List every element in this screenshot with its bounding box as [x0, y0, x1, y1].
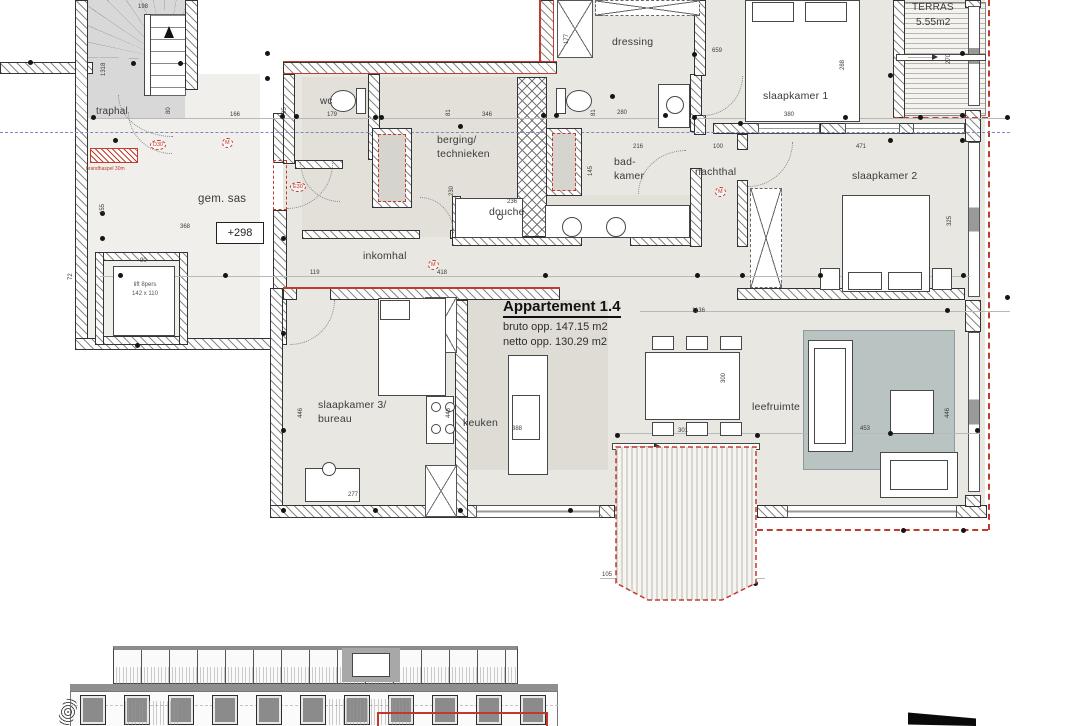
apartment-title: Appartement 1.4 [503, 298, 621, 318]
dimension-label: 179 [327, 112, 337, 118]
roof-slab [70, 684, 558, 691]
toilet-icon-bowl [566, 90, 592, 112]
survey-dot [281, 508, 286, 513]
survey-dot [373, 508, 378, 513]
survey-dot [615, 433, 620, 438]
room-label: wc [320, 96, 333, 107]
room-label: kamer [614, 170, 644, 182]
survey-dot [281, 428, 286, 433]
dimension-label: 659 [712, 48, 722, 54]
terrace-lower-deck [610, 441, 762, 609]
wall-segment [737, 134, 748, 150]
survey-dot [113, 138, 118, 143]
wardrobe [425, 465, 457, 517]
dining-table [645, 352, 740, 420]
plan-graphics-layer: traphalgem. saswcberging/techniekendouch… [0, 0, 1077, 726]
terrace-label: 5.55m2 [916, 17, 951, 28]
survey-dot [131, 61, 136, 66]
fire-rating-symbol: M [715, 187, 726, 197]
survey-dot [178, 61, 183, 66]
dimension-label: 270 [946, 54, 952, 64]
stair-rail [144, 14, 151, 96]
fire-rating-symbol: D30 [150, 140, 166, 150]
survey-dot [458, 124, 463, 129]
insulation-line [553, 0, 555, 62]
desk-chair [322, 462, 336, 476]
survey-dot [118, 273, 123, 278]
survey-dot [379, 115, 384, 120]
survey-dot [692, 52, 697, 57]
survey-dot [918, 115, 923, 120]
dimension-label: 446 [945, 408, 951, 418]
sink-icon [606, 217, 626, 237]
survey-dot [568, 508, 573, 513]
wall-segment [965, 110, 981, 142]
room-label: slaapkamer 2 [852, 170, 917, 182]
wall-segment [965, 300, 981, 332]
fire-hose-reel [90, 148, 138, 163]
room-label: gem. sas [198, 193, 246, 205]
dishwasher [512, 395, 540, 440]
room-label: inkomhal [363, 250, 407, 262]
survey-dot [554, 113, 559, 118]
fire-rating-symbol: M [428, 260, 439, 270]
sofa-cushion [814, 348, 846, 444]
burner-icon [431, 424, 441, 434]
survey-dot [901, 528, 906, 533]
room-label: slaapkamer 1 [763, 90, 828, 102]
penthouse-window [352, 653, 390, 677]
dimension-label: 280 [617, 110, 627, 116]
fire-rating-symbol: E30 [290, 182, 306, 192]
window [787, 505, 957, 518]
dimension-label: 216 [633, 144, 643, 150]
penthouse-railing [113, 667, 518, 684]
survey-dot [294, 114, 299, 119]
room-label: bureau [318, 413, 352, 425]
wall-segment [452, 237, 582, 246]
survey-dot [543, 273, 548, 278]
nightstand [932, 268, 952, 290]
coffee-table [890, 390, 934, 434]
level-marker: +298 [216, 222, 264, 244]
survey-dot [818, 273, 823, 278]
plot-boundary-line [988, 0, 990, 530]
dimension-label: 145 [588, 166, 594, 176]
toilet-icon-tank [356, 88, 366, 114]
wall-segment [185, 0, 198, 90]
balcony-railing [122, 701, 178, 725]
stair-direction-arrow [164, 26, 174, 38]
survey-dot [281, 236, 286, 241]
survey-dot [738, 121, 743, 126]
dimension-label: 277 [348, 492, 358, 498]
wall-segment [283, 288, 297, 300]
toilet-icon-tank [556, 88, 566, 114]
room-label: dressing [612, 36, 653, 48]
wall-segment [95, 336, 188, 345]
nightstand [820, 268, 840, 290]
survey-dot [1005, 115, 1010, 120]
slide-arrow-head [932, 54, 938, 60]
survey-dot [28, 60, 33, 65]
dimension-label: 236 [507, 199, 517, 205]
survey-dot [960, 51, 965, 56]
survey-dot [100, 236, 105, 241]
lift-label-line2: 142 x 110 [116, 291, 174, 297]
lift-label-line1: lift 8pers [116, 282, 174, 288]
dimension-label: 1136 [692, 308, 705, 314]
dimension-label: 119 [310, 270, 320, 276]
facade-window [212, 695, 238, 725]
dining-chair [652, 422, 674, 436]
dimension-label: 388 [512, 426, 522, 432]
dimension-label: 446 [446, 408, 452, 418]
survey-dot [945, 308, 950, 313]
wardrobe [595, 0, 700, 16]
burner-icon [431, 402, 441, 412]
dimension-label: 90 [140, 258, 147, 264]
survey-dot [223, 273, 228, 278]
survey-dot [373, 115, 378, 120]
survey-dot [888, 138, 893, 143]
dining-chair [686, 336, 708, 350]
dimension-label: 446 [298, 408, 304, 418]
toilet-icon-bowl [330, 90, 356, 112]
survey-dot [265, 51, 270, 56]
survey-dot [740, 273, 745, 278]
survey-dot [843, 115, 848, 120]
dimension-label: 418 [437, 270, 447, 276]
technical-unit [552, 133, 576, 191]
wall-segment [179, 252, 188, 345]
pillow [805, 2, 847, 22]
wall-segment [302, 230, 420, 239]
facade-window [80, 695, 106, 725]
pillow [380, 300, 410, 320]
title-block: Appartement 1.4 bruto opp. 147.15 m2 net… [503, 298, 621, 348]
dimension-label: 95 [282, 107, 288, 114]
dining-chair [652, 336, 674, 350]
dimension-label: 100 [713, 144, 723, 150]
dimension-label: 166 [230, 112, 240, 118]
survey-dot [541, 113, 546, 118]
dining-chair [720, 422, 742, 436]
facade-window [256, 695, 282, 725]
dining-chair [720, 336, 742, 350]
technical-unit [378, 134, 406, 202]
dimension-label: 300 [721, 373, 727, 383]
dimension-line [90, 118, 1010, 119]
survey-dot [692, 115, 697, 120]
window [476, 505, 600, 518]
dimension-label: 198 [138, 4, 148, 10]
burner-icon [445, 424, 455, 434]
dimension-label: 301 [678, 428, 688, 434]
wall-segment [965, 495, 981, 507]
room-label: berging/ [437, 134, 477, 146]
insulation-line [283, 73, 557, 75]
dimension-label: 1318 [101, 63, 107, 76]
facade-window [300, 695, 326, 725]
survey-dot [135, 343, 140, 348]
building-elevation [70, 643, 562, 726]
window [968, 142, 980, 297]
dimension-label: 80 [166, 107, 172, 114]
entry-door-marker [273, 160, 287, 210]
room-label: douche [489, 206, 525, 218]
slide-arrow-line [908, 57, 932, 58]
insulation-line [283, 287, 560, 289]
survey-dot [888, 73, 893, 78]
dimension-label: 346 [482, 112, 492, 118]
apartment-highlight-box [377, 712, 548, 726]
wall-segment [95, 252, 104, 345]
room-label: slaapkamer 3/ [318, 399, 387, 411]
window [968, 332, 980, 492]
dimension-label: 325 [947, 216, 953, 226]
dining-chair [686, 422, 708, 436]
wardrobe [557, 0, 593, 58]
insulation-line [283, 61, 557, 63]
fire-hose-label: brandhaspel 30m [86, 166, 125, 172]
survey-dot [961, 528, 966, 533]
insulation-line [539, 0, 541, 62]
wardrobe [750, 188, 782, 288]
room-label: technieken [437, 148, 490, 160]
survey-dot [663, 113, 668, 118]
net-area-label: netto opp. 130.29 m2 [503, 336, 621, 348]
room-label: keuken [463, 417, 498, 429]
pillow [888, 272, 922, 290]
armchair-cushion [890, 460, 948, 490]
survey-dot [975, 428, 980, 433]
floor-plan-canvas: traphalgem. saswcberging/techniekendouch… [0, 0, 1077, 726]
survey-dot [961, 273, 966, 278]
dimension-label: 288 [840, 60, 846, 70]
survey-dot [458, 508, 463, 513]
room-label: traphal [96, 106, 128, 117]
wall-segment [270, 288, 283, 518]
dimension-label: 72 [68, 273, 74, 280]
survey-dot [960, 113, 965, 118]
dimension-label: 380 [784, 112, 794, 118]
dimension-label: 81 [446, 109, 452, 116]
survey-dot [888, 431, 893, 436]
survey-dot [281, 331, 286, 336]
survey-dot [1005, 295, 1010, 300]
wall-segment [690, 168, 702, 247]
wall-segment [737, 180, 748, 247]
survey-dot [280, 114, 285, 119]
dimension-label: 368 [180, 224, 190, 230]
dimension-label: 453 [860, 426, 870, 432]
fire-rating-symbol: M [222, 138, 233, 148]
survey-dot [610, 94, 615, 99]
survey-dot [695, 273, 700, 278]
room-label: leefruimte [752, 401, 800, 413]
dimension-label: 230 [449, 186, 455, 196]
wall-segment [75, 0, 88, 350]
dimension-label: 155 [100, 204, 106, 214]
room-label: bad- [614, 156, 636, 168]
sink-icon [562, 217, 582, 237]
pillow [848, 272, 882, 290]
wall-segment [283, 74, 295, 164]
survey-dot [265, 76, 270, 81]
terrace-label: TERRAS [912, 2, 954, 13]
survey-dot [960, 138, 965, 143]
dimension-label: 81 [591, 109, 597, 116]
survey-dot [91, 115, 96, 120]
room-label: nachthal [695, 166, 736, 178]
pillow [752, 2, 794, 22]
survey-dot [755, 433, 760, 438]
wall-segment [630, 237, 692, 246]
gross-area-label: bruto opp. 147.15 m2 [503, 321, 621, 333]
plot-boundary-line [757, 529, 988, 531]
dimension-label: 471 [856, 144, 866, 150]
sink-icon [666, 96, 684, 114]
dimension-label: 177 [564, 34, 570, 44]
